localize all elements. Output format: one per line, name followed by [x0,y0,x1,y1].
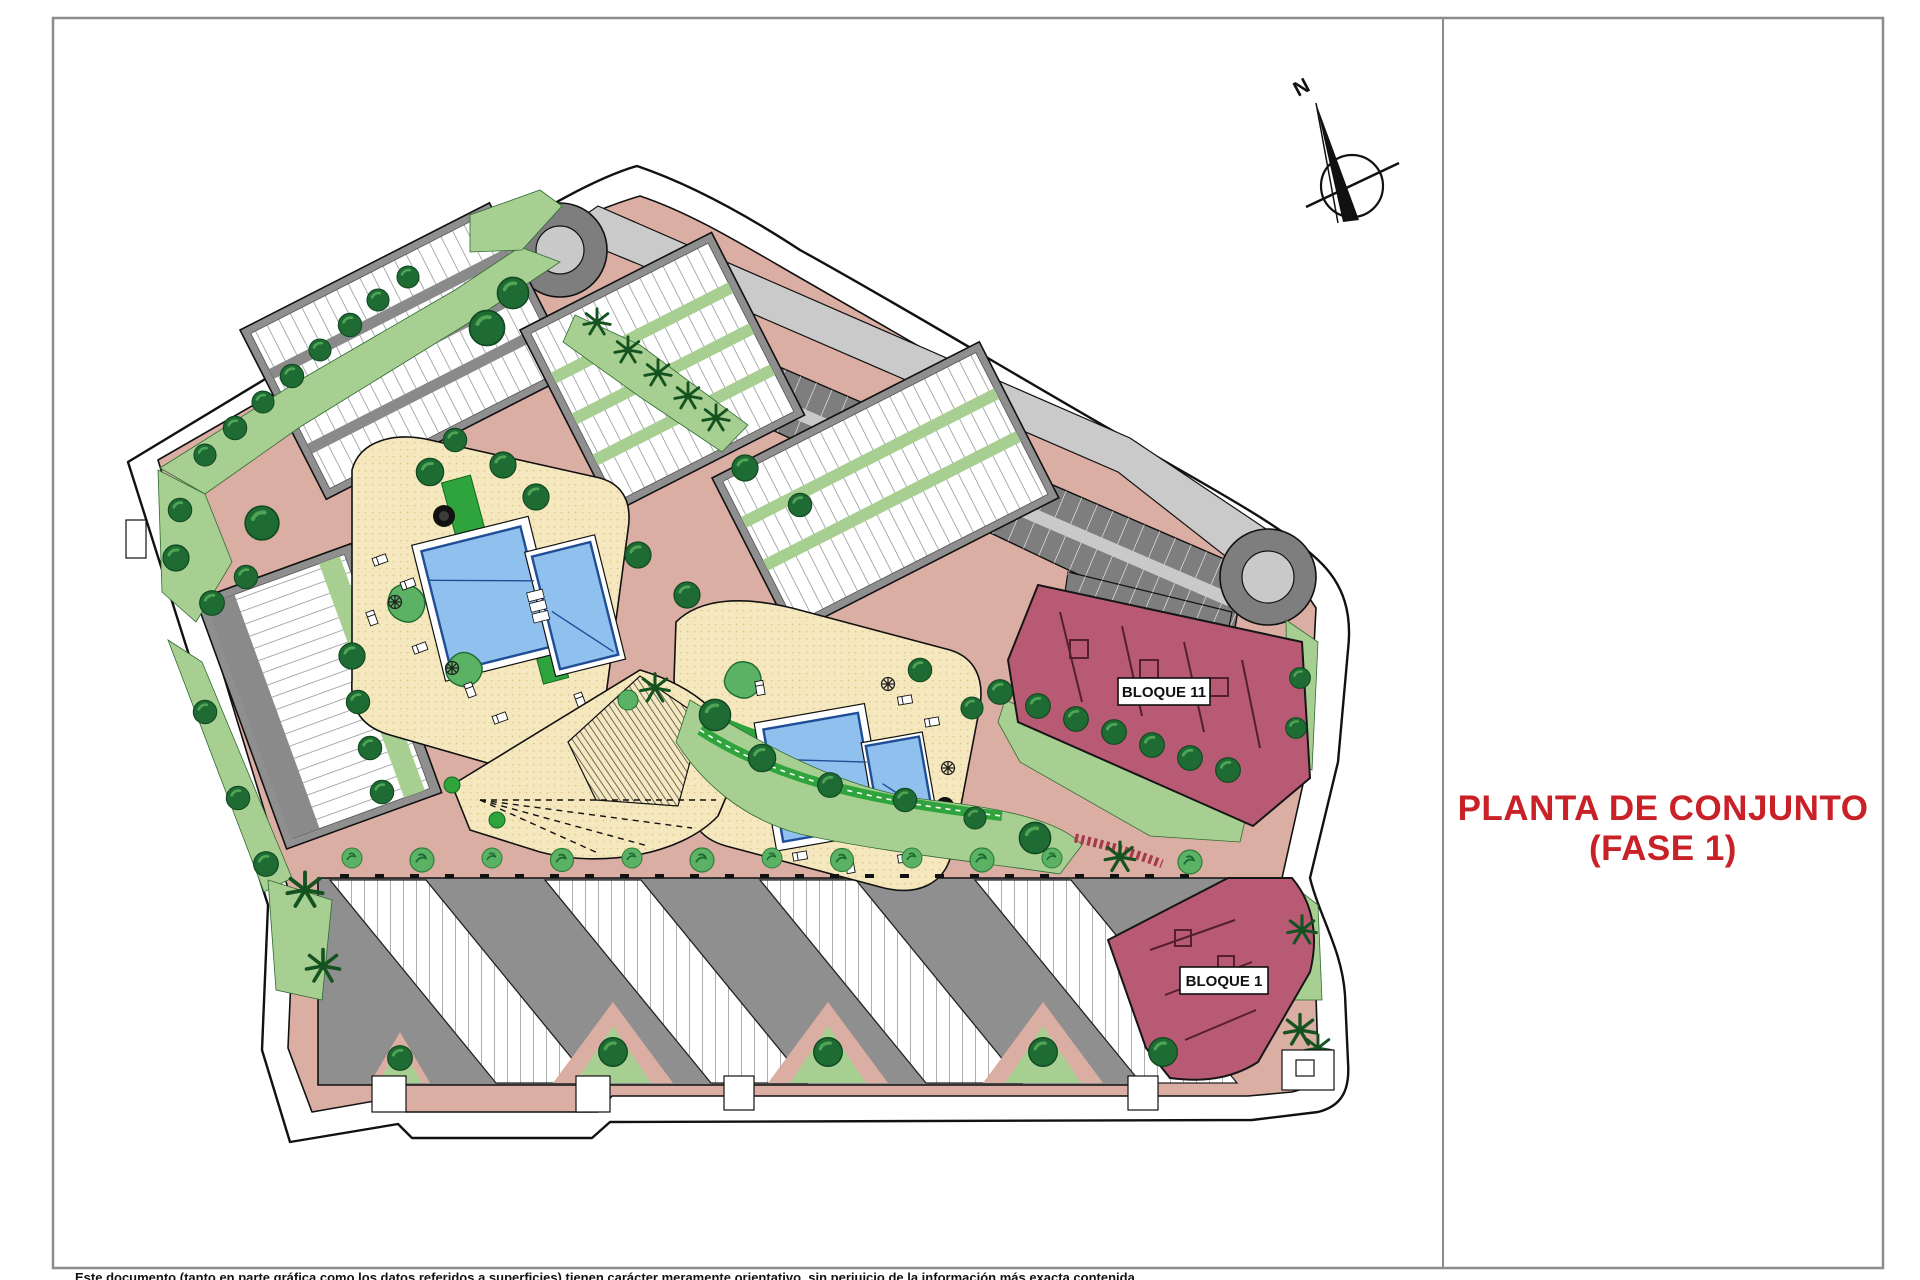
disclaimer-text: Este documento (tanto en parte gráfica c… [75,1270,1136,1280]
site-plan-canvas: BLOQUE 11 BLOQUE 1 N PLANTA DE CONJUNTO … [0,0,1920,1280]
svg-text:BLOQUE 1: BLOQUE 1 [1186,973,1263,990]
plan-title-line1: PLANTA DE CONJUNTO [1458,789,1869,828]
svg-text:BLOQUE 11: BLOQUE 11 [1122,684,1206,701]
bloque-1-label: BLOQUE 1 [1180,967,1268,994]
bloque-11-label: BLOQUE 11 [1118,678,1210,705]
cluster-bottom-zigzag [318,878,1245,1085]
plan-title-line2: (FASE 1) [1589,829,1737,868]
roundabout-east [1220,529,1316,625]
